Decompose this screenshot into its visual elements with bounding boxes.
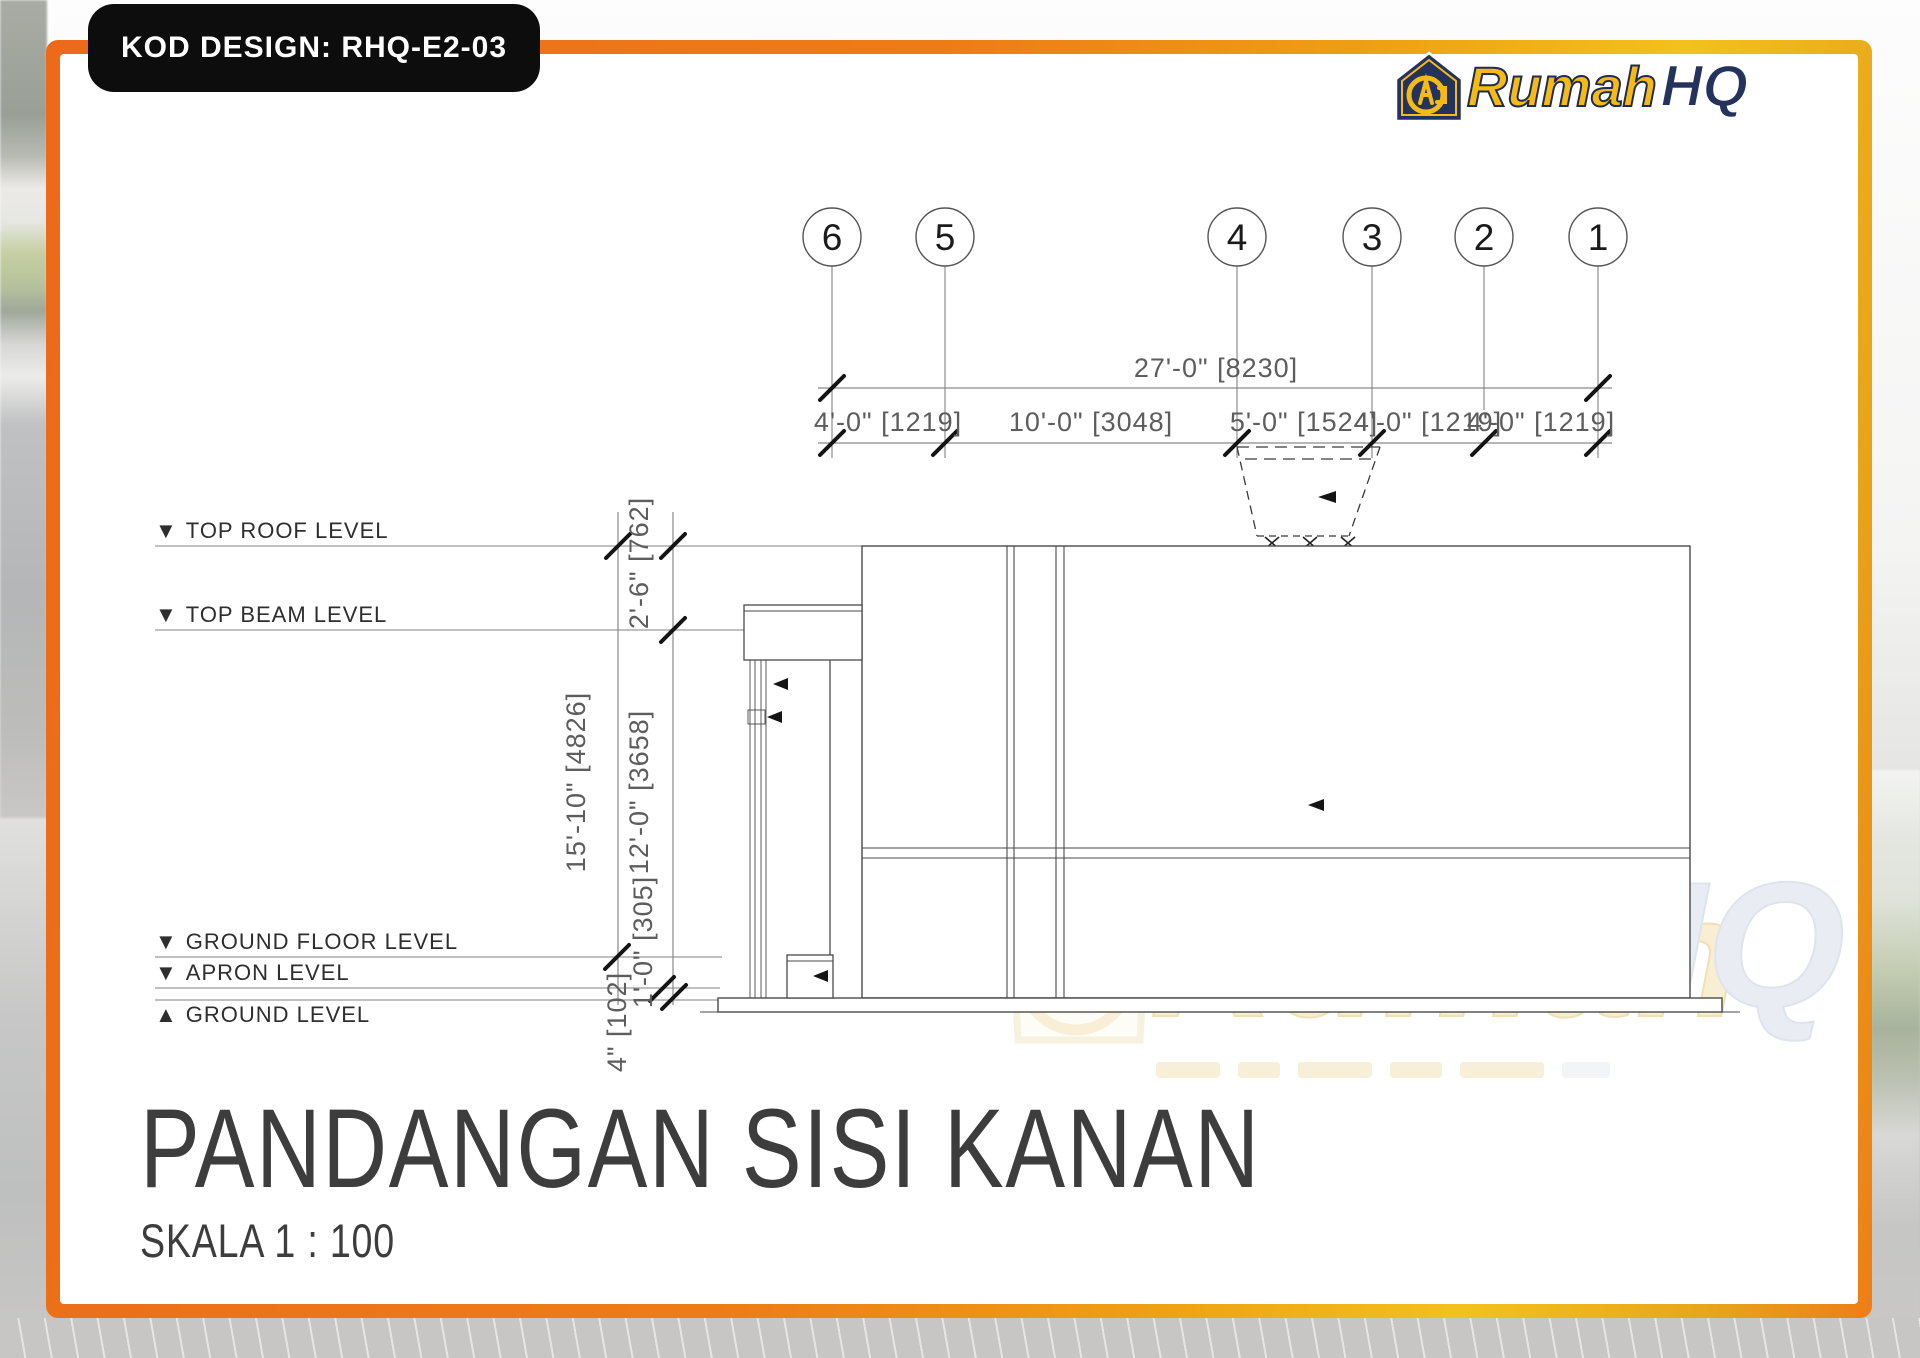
grid-number-1: 1 [1588,217,1609,258]
dim-overall: 27'-0" [8230] [1134,353,1298,383]
label-top-beam-level: ▼TOP BEAM LEVEL [155,602,387,627]
brand-word-primary: Rumah [1467,55,1657,118]
view-title: PANDANGAN SISI KANAN [140,1093,1261,1205]
page: Rumah HQ 6 [0,0,1920,1358]
vdim-beam-to-floor: 12'-0" [3658] [624,710,654,874]
dim-segment-6-5: 4'-0" [1219] [814,407,962,437]
grid-number-5: 5 [935,217,956,258]
vdim-overall: 15'-10" [4826] [561,692,591,872]
level-marker-icon: ▲ [155,1002,178,1027]
level-labels: ▼TOP ROOF LEVEL ▼TOP BEAM LEVEL ▼GROUND … [155,518,458,1027]
view-scale: SKALA 1 : 100 [140,1213,395,1268]
brand-wordmark: RumahHQ [1467,52,1748,122]
grid-number-3: 3 [1362,217,1383,258]
dim-segment-5-4: 10'-0" [3048] [1009,407,1173,437]
vdim-apron-to-ground: 4" [102] [602,972,632,1072]
label-ground-floor-level: ▼GROUND FLOOR LEVEL [155,929,458,954]
porch-canopy [744,605,862,660]
vertical-dimensions: 2'-6" [762] 12'-0" [3658] 1'-0" [305] 4"… [561,497,686,1072]
level-marker-icon: ▼ [155,929,178,954]
grid-number-2: 2 [1474,217,1495,258]
title-block: PANDANGAN SISI KANAN SKALA 1 : 100 [140,1093,1541,1268]
level-marker-icon: ▼ [155,518,178,543]
watermark-tagline [1156,1062,1610,1078]
design-code-banner: KOD DESIGN: RHQ-E2-03 [88,4,540,92]
vdim-floor-to-apron: 1'-0" [305] [628,876,658,1008]
brand-word-secondary: HQ [1661,54,1748,119]
dim-segment-2-1: 4'-0" [1219] [1467,407,1615,437]
flow-arrow-icon [1318,491,1336,503]
gutter-funnel [1237,447,1380,549]
level-marker-icon: ▼ [155,602,178,627]
plinth-slab [718,998,1722,1012]
grid-number-4: 4 [1227,217,1248,258]
design-code-text: KOD DESIGN: RHQ-E2-03 [121,31,507,65]
grid-number-6: 6 [822,217,843,258]
brand-house-icon [1393,50,1465,126]
level-marker-icon: ▼ [155,960,178,985]
label-top-roof-level: ▼TOP ROOF LEVEL [155,518,388,543]
horizontal-dimensions: 27'-0" [8230] 4'-0" [1219] 10'-0" [3048]… [814,353,1615,455]
downpipe [748,660,766,998]
label-apron-level: ▼APRON LEVEL [155,960,350,985]
label-ground-level: ▲GROUND LEVEL [155,1002,370,1027]
vdim-roof-to-beam: 2'-6" [762] [624,497,654,629]
brand-logo: RumahHQ [1393,50,1823,128]
